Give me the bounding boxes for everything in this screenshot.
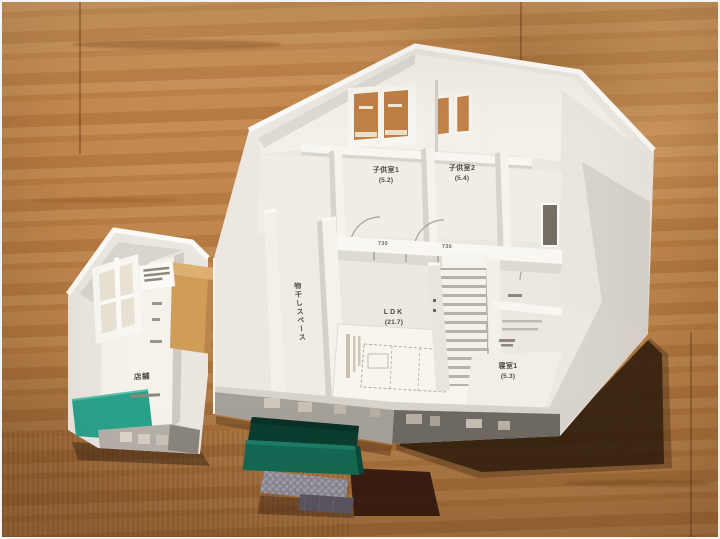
dimension-label-right: 730: [442, 244, 452, 250]
annex-label-card: [139, 262, 175, 289]
bedroom1-area: (5.3): [480, 372, 536, 381]
annex-window-slit: [120, 432, 132, 442]
wall-top-rim: [264, 210, 276, 212]
tiny-annotation: [152, 318, 160, 321]
bedroom1-name: 寝室1: [498, 363, 517, 370]
annex-model: [68, 230, 214, 454]
annex-window-slit: [156, 435, 168, 445]
plan-note-column: [353, 336, 356, 372]
wall-post-shade: [435, 80, 438, 152]
porch-roof: [243, 417, 364, 475]
child2-name: 子供室2: [449, 165, 476, 172]
room-label-shop: 店舗: [120, 371, 165, 384]
tiny-annotation: [433, 309, 436, 312]
window-opening: [456, 94, 470, 133]
wall-top-rim: [322, 218, 336, 220]
child2-area: (5.4): [434, 174, 490, 183]
window-sill: [385, 130, 407, 135]
front-window-slit: [466, 419, 482, 428]
tiny-annotation: [150, 340, 162, 343]
closet-line: [502, 328, 538, 331]
tiny-annotation: [388, 104, 402, 107]
child1-name: 子供室1: [373, 167, 400, 174]
dimension-label-left: 730: [378, 241, 388, 247]
tiny-annotation: [501, 344, 513, 347]
annex-front-wall-dark: [168, 425, 200, 454]
drying-corridor: [264, 210, 346, 402]
tiny-annotation: [508, 294, 522, 297]
annex-window-slit: [138, 434, 150, 444]
front-window-slit: [430, 416, 440, 426]
front-window-slit: [264, 398, 280, 408]
plan-note-column: [358, 336, 361, 366]
child1-area: (5.2): [358, 176, 414, 185]
front-window-slit: [370, 408, 380, 417]
annex-window: [92, 254, 142, 344]
front-window-slit: [406, 414, 422, 424]
window-sill: [355, 132, 377, 137]
room-label-child1: 子供室1 (5.2): [358, 166, 414, 186]
closet-line: [502, 320, 542, 323]
room-label-child2: 子供室2 (5.4): [434, 164, 490, 184]
dark-void-opening: [542, 204, 558, 246]
room-label-ldk: LDK (21.7): [364, 308, 424, 328]
stair-landing: [442, 254, 492, 270]
ldk-area: (21.7): [364, 318, 424, 327]
front-window-slit: [498, 421, 510, 430]
tiny-annotation: [152, 302, 162, 305]
ldk-name: LDK: [384, 309, 404, 316]
model-scene: [2, 2, 718, 537]
photo-architectural-model: 子供室1 (5.2) 子供室2 (5.4) LDK (21.7) 物干しスペース…: [0, 0, 720, 539]
front-window-slit: [334, 405, 346, 414]
main-model: [214, 46, 654, 444]
tiny-annotation: [499, 339, 515, 342]
tiny-annotation: [359, 106, 373, 109]
wall-post: [480, 86, 490, 154]
room-label-bedroom1: 寝室1 (5.3): [480, 362, 536, 382]
tiny-annotation: [433, 299, 436, 302]
front-window-slit: [298, 402, 312, 412]
plan-note-column: [346, 334, 350, 378]
porch-cast-shadow: [350, 468, 440, 516]
kraft-block: [170, 262, 214, 354]
